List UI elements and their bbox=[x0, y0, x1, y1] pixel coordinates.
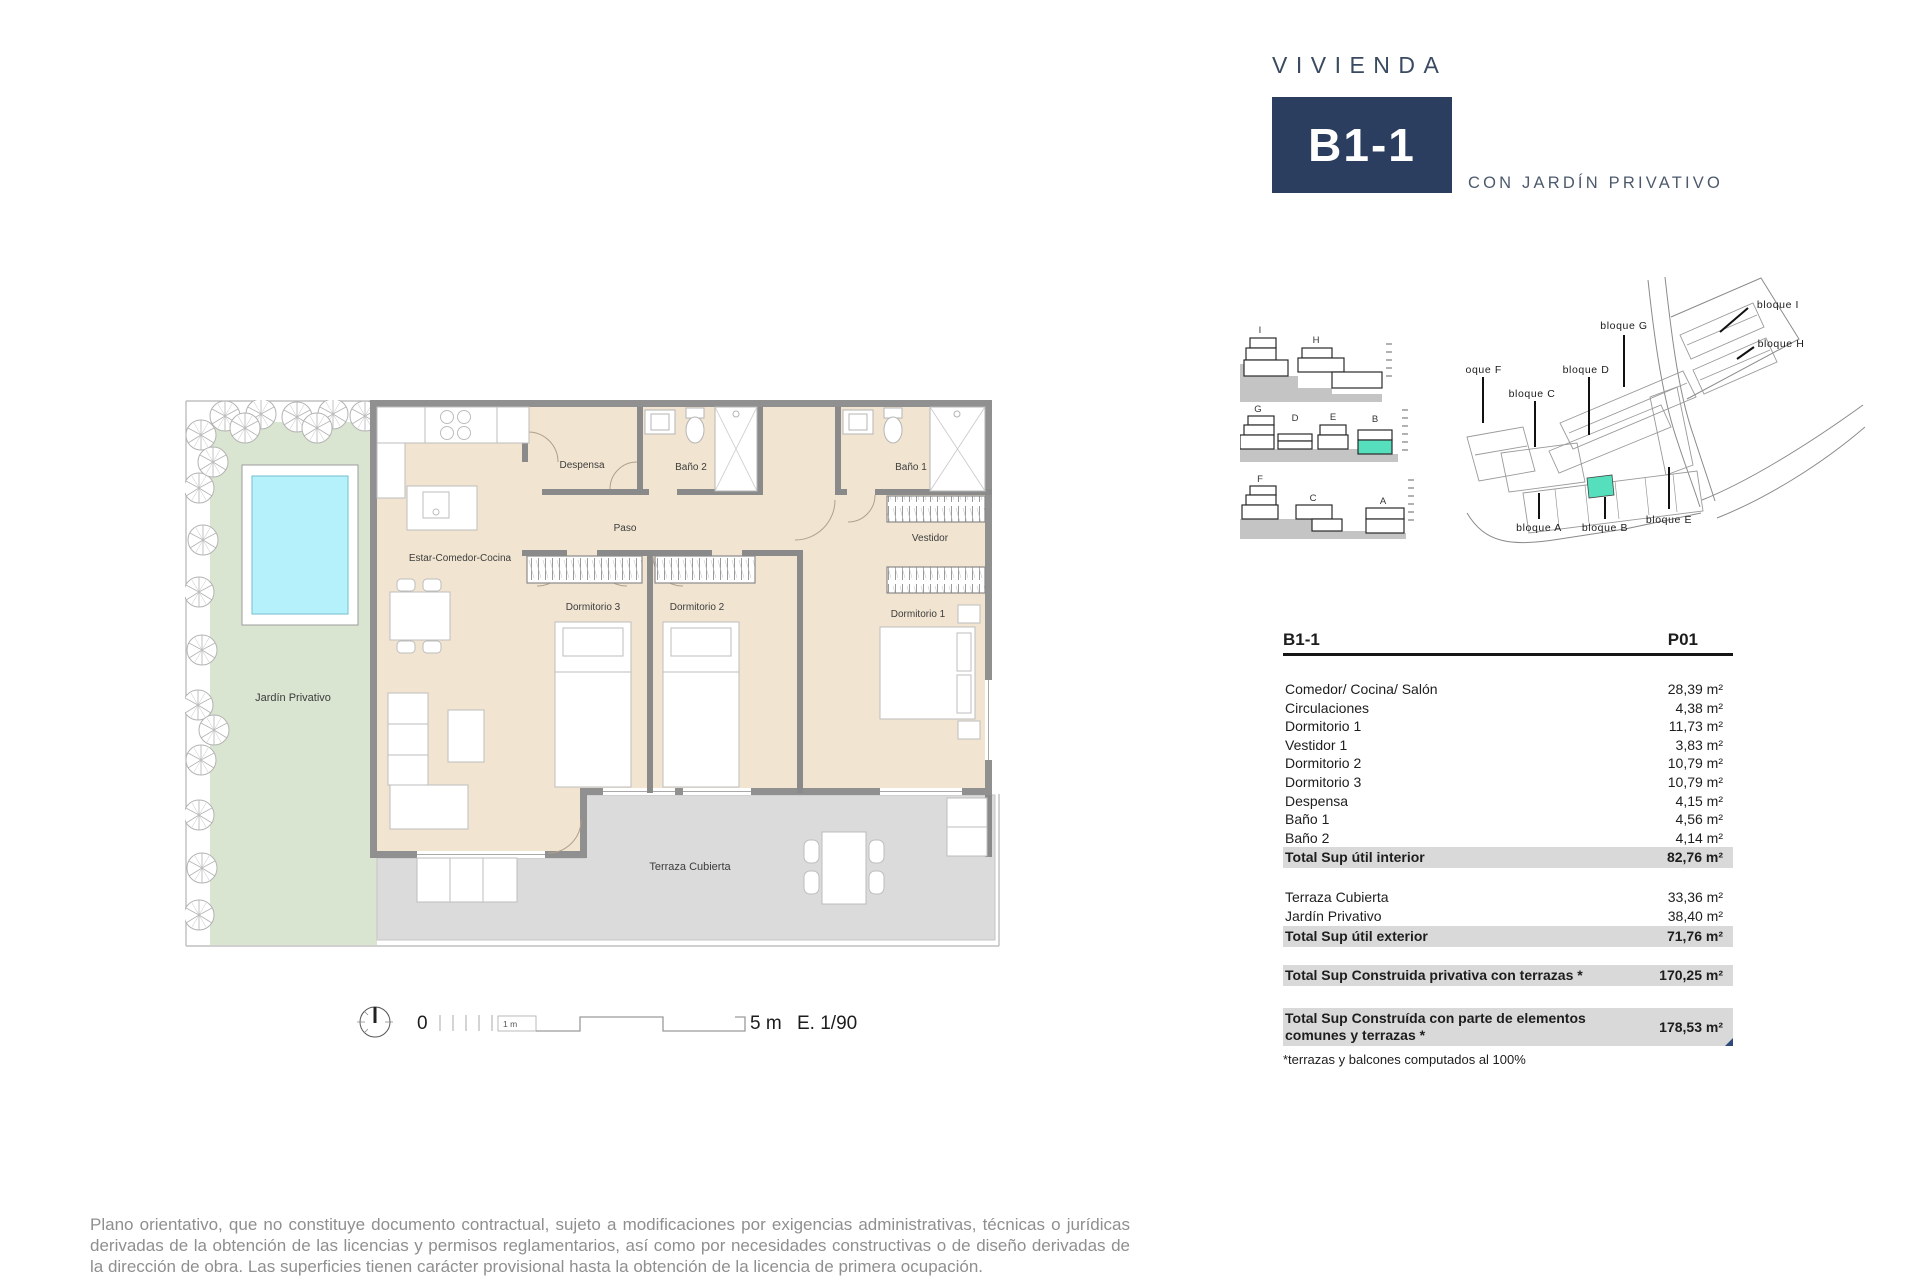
room-label-despensa: Despensa bbox=[559, 460, 604, 471]
row-value: 10,79 m² bbox=[1668, 773, 1733, 792]
table-body: Comedor/ Cocina/ Salón28,39 m² Circulaci… bbox=[1283, 680, 1733, 1067]
site-labels: bloque F bloque C bloque D bloque G bloq… bbox=[1465, 299, 1804, 534]
table-total-exterior: Total Sup útil exterior71,76 m² bbox=[1283, 926, 1733, 947]
row-label: Comedor/ Cocina/ Salón bbox=[1283, 680, 1438, 699]
site-plan: bloque F bloque C bloque D bloque G bloq… bbox=[1465, 275, 1865, 570]
row-label: Dormitorio 3 bbox=[1283, 773, 1361, 792]
scale-steps bbox=[536, 1017, 745, 1031]
room-label-jardin: Jardín Privativo bbox=[255, 692, 331, 704]
row-label: Dormitorio 2 bbox=[1283, 754, 1361, 773]
row-label: Total Sup Construída con parte de elemen… bbox=[1283, 1008, 1617, 1046]
table-row: Baño 24,14 m² bbox=[1283, 829, 1733, 848]
elev-ticks-2 bbox=[1402, 410, 1408, 450]
page-subtitle: CON JARDÍN PRIVATIVO bbox=[1468, 174, 1723, 193]
room-label-bano2: Baño 2 bbox=[675, 462, 707, 473]
row-value: 82,76 m² bbox=[1667, 847, 1733, 868]
table-row: Comedor/ Cocina/ Salón28,39 m² bbox=[1283, 680, 1733, 699]
site-label-h: bloque H bbox=[1758, 338, 1805, 350]
table-row: Despensa4,15 m² bbox=[1283, 792, 1733, 811]
row-value: 71,76 m² bbox=[1667, 926, 1733, 947]
north-arrow-icon bbox=[357, 1007, 393, 1037]
comment-marker-icon bbox=[1725, 1038, 1733, 1046]
elev-blocks-2 bbox=[1240, 416, 1392, 454]
elevation-diagram: I H G D E B F bbox=[1240, 322, 1460, 540]
row-value: 38,40 m² bbox=[1668, 907, 1733, 926]
row-label: Circulaciones bbox=[1283, 699, 1369, 718]
row-value: 11,73 m² bbox=[1669, 717, 1733, 736]
elev-label-b: B bbox=[1372, 414, 1378, 425]
site-label-d: bloque D bbox=[1563, 364, 1610, 376]
room-label-vestidor: Vestidor bbox=[912, 533, 949, 544]
elev-label-c: C bbox=[1310, 493, 1317, 504]
table-total-privativa: Total Sup Construida privativa con terra… bbox=[1283, 965, 1733, 986]
row-label: Vestidor 1 bbox=[1283, 736, 1347, 755]
table-row: Vestidor 13,83 m² bbox=[1283, 736, 1733, 755]
row-label: Dormitorio 1 bbox=[1283, 717, 1361, 736]
table-footnote: *terrazas y balcones computados al 100% bbox=[1283, 1052, 1733, 1067]
elev-label-f: F bbox=[1257, 474, 1263, 485]
table-row: Dormitorio 111,73 m² bbox=[1283, 717, 1733, 736]
table-row: Circulaciones4,38 m² bbox=[1283, 699, 1733, 718]
elev-label-e: E bbox=[1330, 412, 1336, 423]
unit-code: B1-1 bbox=[1308, 118, 1416, 172]
table-row: Dormitorio 310,79 m² bbox=[1283, 773, 1733, 792]
page-title: VIVIENDA bbox=[1272, 52, 1447, 79]
room-label-dorm3: Dormitorio 3 bbox=[566, 602, 621, 613]
table-spacer bbox=[1283, 868, 1733, 888]
table-row: Baño 14,56 m² bbox=[1283, 810, 1733, 829]
site-leader-lines bbox=[1483, 308, 1754, 519]
site-label-f: bloque F bbox=[1465, 364, 1502, 376]
room-label-dorm1: Dormitorio 1 bbox=[891, 609, 946, 620]
row-value: 3,83 m² bbox=[1676, 736, 1733, 755]
table-spacer bbox=[1283, 986, 1733, 1008]
site-label-b: bloque B bbox=[1582, 522, 1628, 534]
row-value: 4,14 m² bbox=[1676, 829, 1733, 848]
row-label: Total Sup Construida privativa con terra… bbox=[1283, 965, 1583, 986]
row-value: 170,25 m² bbox=[1659, 965, 1733, 986]
row-label: Baño 1 bbox=[1283, 810, 1329, 829]
table-row: Terraza Cubierta33,36 m² bbox=[1283, 888, 1733, 907]
table-total-interior: Total Sup útil interior82,76 m² bbox=[1283, 847, 1733, 868]
elev-label-d: D bbox=[1292, 413, 1299, 424]
site-label-e: bloque E bbox=[1646, 514, 1692, 526]
row-label: Total Sup útil exterior bbox=[1283, 926, 1428, 947]
elev-ticks-1 bbox=[1386, 344, 1392, 376]
floor-plan: Despensa Baño 2 Baño 1 Paso Estar-Comedo… bbox=[185, 400, 1010, 948]
legal-disclaimer: Plano orientativo, que no constituye doc… bbox=[90, 1214, 1130, 1277]
row-value: 4,38 m² bbox=[1676, 699, 1733, 718]
row-value: 10,79 m² bbox=[1668, 754, 1733, 773]
room-label-terraza: Terraza Cubierta bbox=[649, 861, 731, 873]
scale-zero: 0 bbox=[417, 1013, 428, 1034]
table-row: Dormitorio 210,79 m² bbox=[1283, 754, 1733, 773]
table-rule bbox=[1283, 653, 1733, 656]
row-value: 4,15 m² bbox=[1676, 792, 1733, 811]
row-value: 33,36 m² bbox=[1668, 888, 1733, 907]
row-value: 28,39 m² bbox=[1668, 680, 1733, 699]
brochure-page: Despensa Baño 2 Baño 1 Paso Estar-Comedo… bbox=[0, 0, 1920, 1280]
elev-label-g: G bbox=[1254, 404, 1261, 415]
elev-ticks-3 bbox=[1408, 480, 1414, 520]
scale-bar: 0 1 m 5 m E. 1/90 bbox=[355, 995, 865, 1050]
site-buildings bbox=[1467, 303, 1777, 533]
scale-ticks bbox=[440, 1015, 492, 1031]
row-label: Baño 2 bbox=[1283, 829, 1329, 848]
site-label-i: bloque I bbox=[1757, 299, 1799, 311]
table-row: Jardín Privativo38,40 m² bbox=[1283, 907, 1733, 926]
room-label-bano1: Baño 1 bbox=[895, 462, 927, 473]
room-label-dorm2: Dormitorio 2 bbox=[670, 602, 725, 613]
table-total-comunes: Total Sup Construída con parte de elemen… bbox=[1283, 1008, 1733, 1046]
table-header-unit: B1-1 bbox=[1283, 630, 1320, 650]
elev-label-h: H bbox=[1313, 335, 1320, 346]
row-label: Despensa bbox=[1283, 792, 1348, 811]
row-label: Jardín Privativo bbox=[1283, 907, 1381, 926]
unit-badge: B1-1 bbox=[1272, 97, 1452, 193]
row-label: Terraza Cubierta bbox=[1283, 888, 1389, 907]
pool bbox=[252, 476, 348, 614]
row-value: 4,56 m² bbox=[1676, 810, 1733, 829]
scale-five-m: 5 m bbox=[750, 1013, 782, 1034]
row-value: 178,53 m² bbox=[1659, 1019, 1733, 1035]
scale-one-m: 1 m bbox=[503, 1019, 517, 1029]
room-label-estar: Estar-Comedor-Cocina bbox=[409, 553, 512, 564]
table-header-floor: P01 bbox=[1668, 630, 1733, 650]
elev-label-i: I bbox=[1259, 325, 1262, 336]
row-label: Total Sup útil interior bbox=[1283, 847, 1425, 868]
elev-label-a: A bbox=[1380, 496, 1387, 507]
room-label-paso: Paso bbox=[614, 523, 637, 534]
site-unit-highlight bbox=[1587, 475, 1614, 498]
site-label-g: bloque G bbox=[1600, 320, 1647, 332]
site-label-a: bloque A bbox=[1516, 522, 1562, 534]
table-spacer bbox=[1283, 947, 1733, 965]
table-header: B1-1 P01 bbox=[1283, 630, 1733, 653]
area-table: B1-1 P01 Comedor/ Cocina/ Salón28,39 m² … bbox=[1283, 630, 1733, 1067]
site-label-c: bloque C bbox=[1509, 388, 1556, 400]
scale-ratio: E. 1/90 bbox=[797, 1013, 857, 1034]
